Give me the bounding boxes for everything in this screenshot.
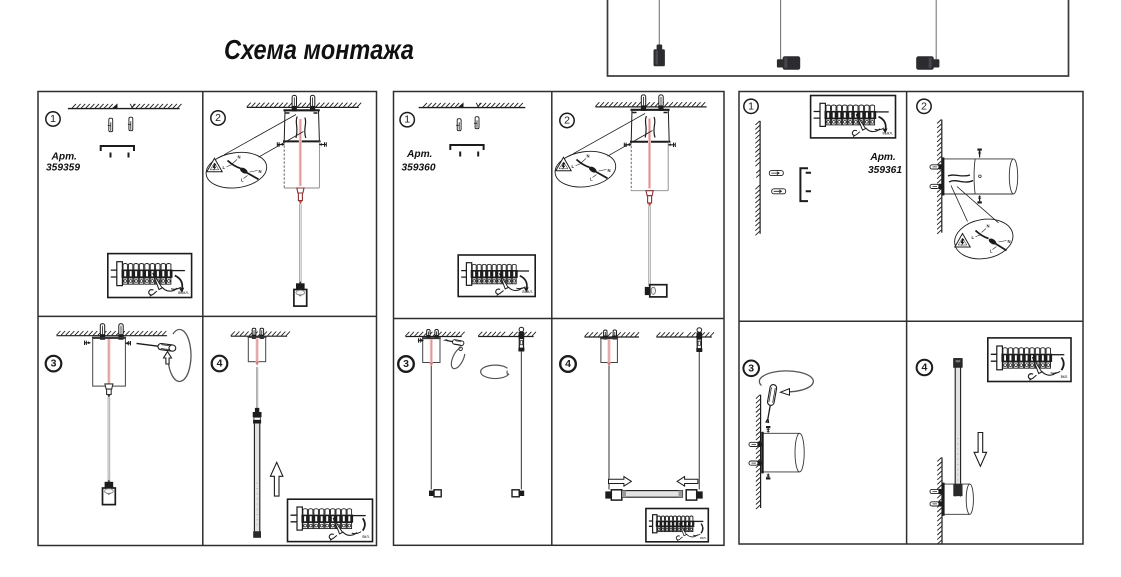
svg-text:выкл.: выкл. bbox=[883, 131, 893, 136]
svg-text:2: 2 bbox=[921, 100, 927, 112]
svg-text:N: N bbox=[987, 224, 990, 229]
svg-text:N: N bbox=[259, 169, 262, 174]
svg-text:N: N bbox=[587, 154, 590, 159]
svg-text:1: 1 bbox=[748, 100, 754, 112]
svg-text:Арт.: Арт. bbox=[51, 152, 77, 163]
svg-text:1: 1 bbox=[50, 113, 56, 125]
svg-text:выкл.: выкл. bbox=[522, 289, 532, 294]
svg-text:L: L bbox=[223, 165, 226, 170]
svg-text:Арт.: Арт. bbox=[406, 149, 432, 160]
svg-text:вкл.: вкл. bbox=[700, 536, 706, 540]
svg-text:N: N bbox=[238, 155, 241, 160]
svg-text:1: 1 bbox=[404, 114, 410, 126]
svg-text:N: N bbox=[608, 168, 611, 173]
svg-text:2: 2 bbox=[215, 112, 221, 124]
svg-text:359359: 359359 bbox=[46, 163, 80, 174]
svg-text:3: 3 bbox=[403, 358, 409, 370]
svg-text:выкл.: выкл. bbox=[178, 290, 189, 295]
svg-text:3: 3 bbox=[51, 358, 57, 370]
svg-text:2: 2 bbox=[564, 115, 570, 127]
svg-text:4: 4 bbox=[565, 358, 571, 370]
svg-text:вкл.: вкл. bbox=[362, 534, 370, 539]
svg-text:L: L bbox=[572, 164, 575, 169]
svg-text:3: 3 bbox=[748, 362, 754, 374]
svg-text:вкл.: вкл. bbox=[1061, 374, 1069, 379]
svg-text:4: 4 bbox=[217, 358, 223, 370]
svg-text:4: 4 bbox=[921, 362, 927, 374]
svg-text:L: L bbox=[972, 235, 975, 240]
svg-text:N: N bbox=[1008, 239, 1011, 244]
svg-text:359360: 359360 bbox=[402, 163, 436, 174]
svg-text:359361: 359361 bbox=[868, 165, 902, 176]
svg-text:Арт.: Арт. bbox=[869, 152, 895, 163]
svg-text:Схема монтажа: Схема монтажа bbox=[224, 34, 414, 65]
